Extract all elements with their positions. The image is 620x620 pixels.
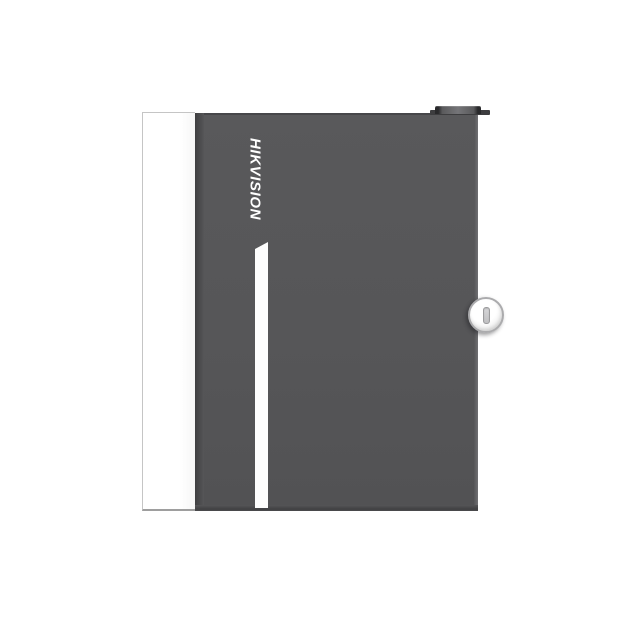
brand-logo-text: HIKVISION: [247, 138, 263, 234]
door-bottom-edge: [195, 505, 478, 511]
accent-stripe: [255, 242, 268, 508]
product-photo-stage: HIKVISION: [0, 0, 620, 620]
key-lock: [468, 297, 504, 333]
keyhole-slot: [483, 307, 490, 324]
side-panel: [142, 112, 195, 511]
enclosure: HIKVISION: [142, 112, 478, 512]
door-panel: HIKVISION: [195, 113, 478, 511]
cable-gland: [435, 106, 481, 114]
door-left-shadow: [195, 113, 204, 511]
